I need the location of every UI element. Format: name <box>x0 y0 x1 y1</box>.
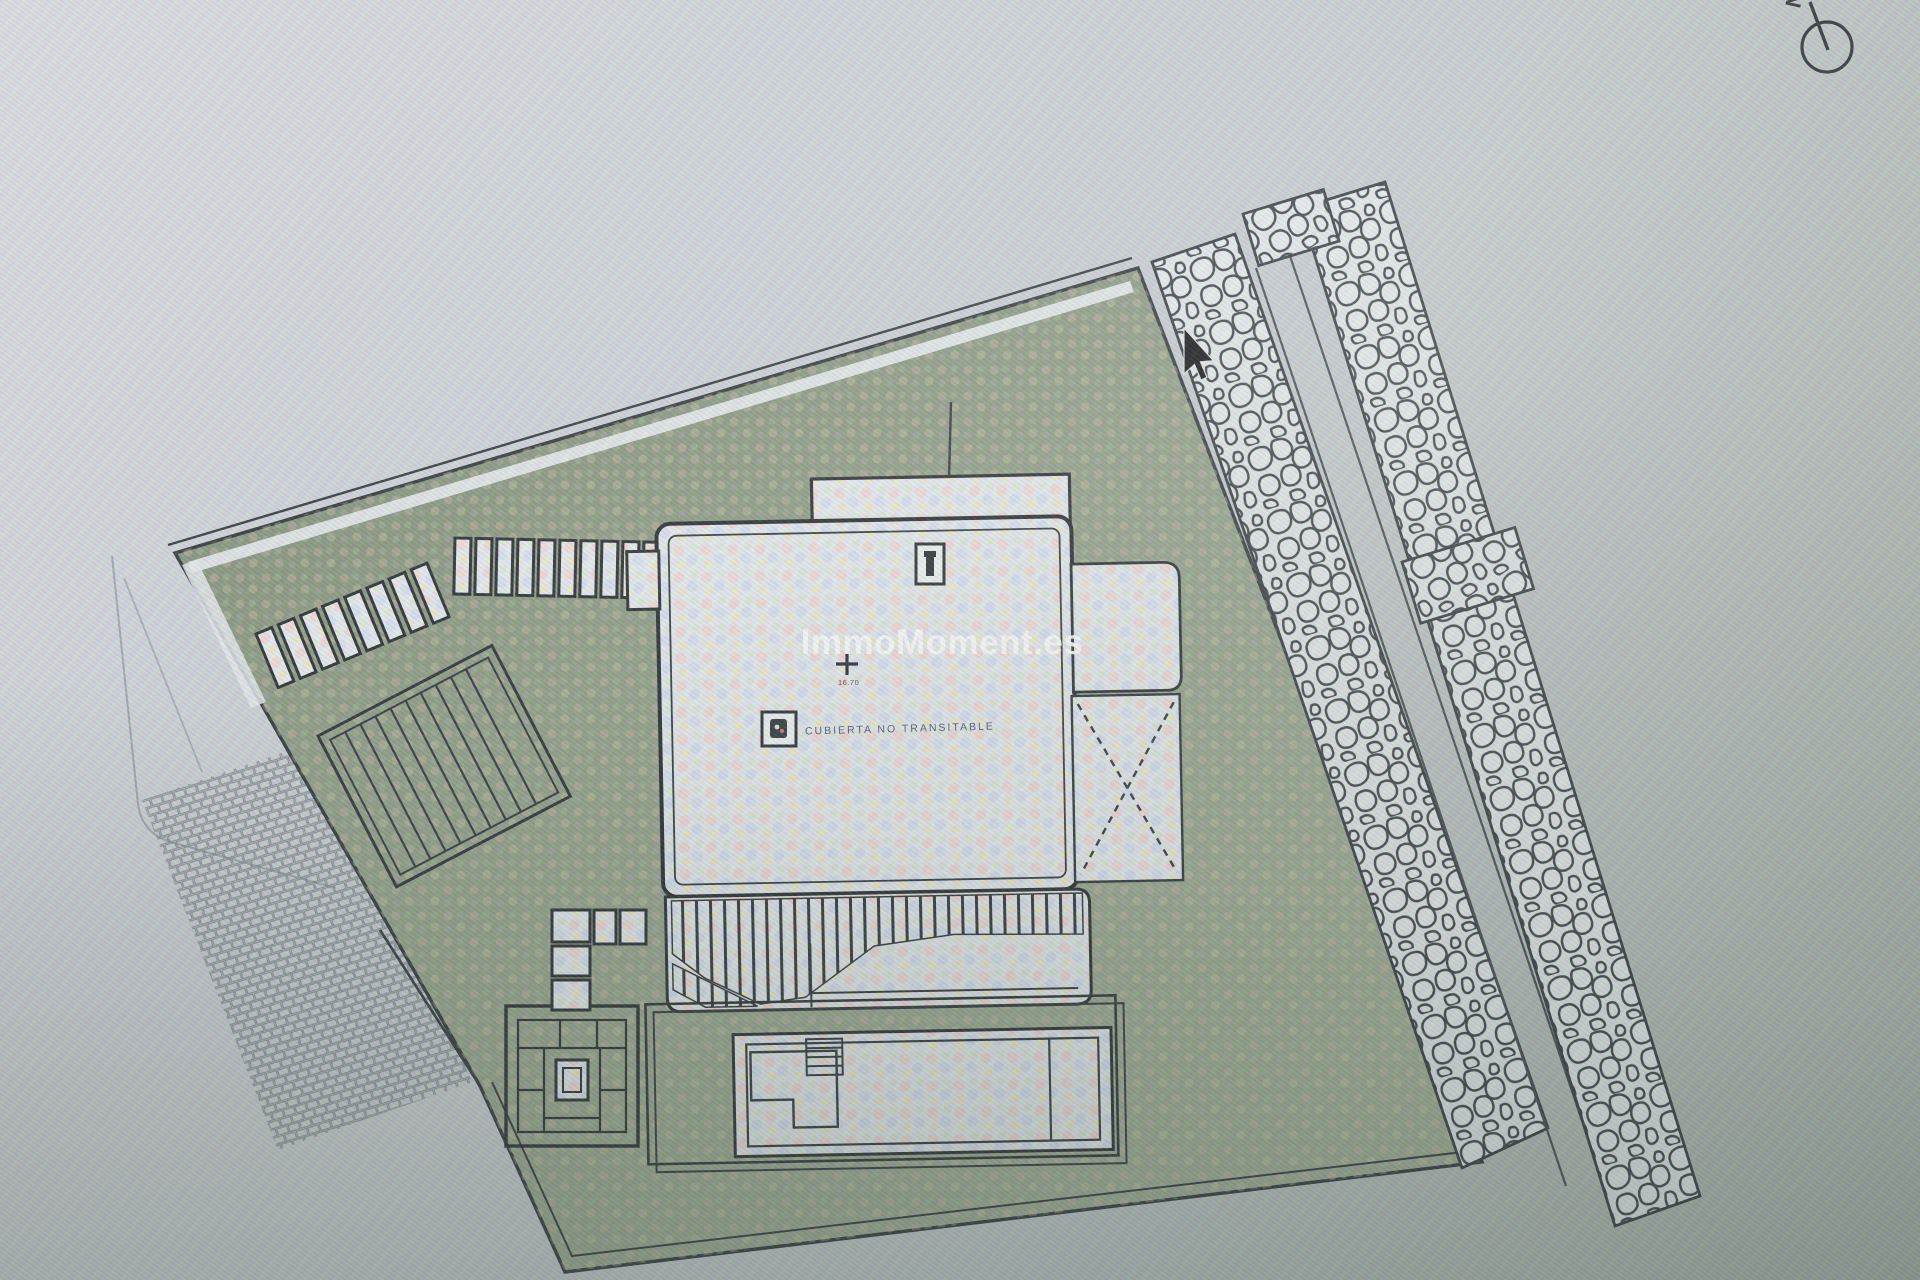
walkway-divider-line <box>810 943 811 1007</box>
north-compass-icon: N <box>1780 0 1852 72</box>
rooflight-symbol-1 <box>916 544 944 584</box>
annex-roof <box>1071 562 1181 692</box>
rooflight-symbol-2 <box>762 712 796 746</box>
main-roof <box>656 516 1078 897</box>
elevation-value: 16.70 <box>838 678 859 687</box>
watermark: ImmoMoment.es <box>801 623 1084 662</box>
site-plan-drawing: 16.70 CUBIERTA NO TRANSITABLE ImmoMoment… <box>0 0 1920 1280</box>
roof-left-projection <box>627 551 660 610</box>
north-label: N <box>1780 0 1808 10</box>
screen-photo: 16.70 CUBIERTA NO TRANSITABLE ImmoMoment… <box>0 0 1920 1280</box>
